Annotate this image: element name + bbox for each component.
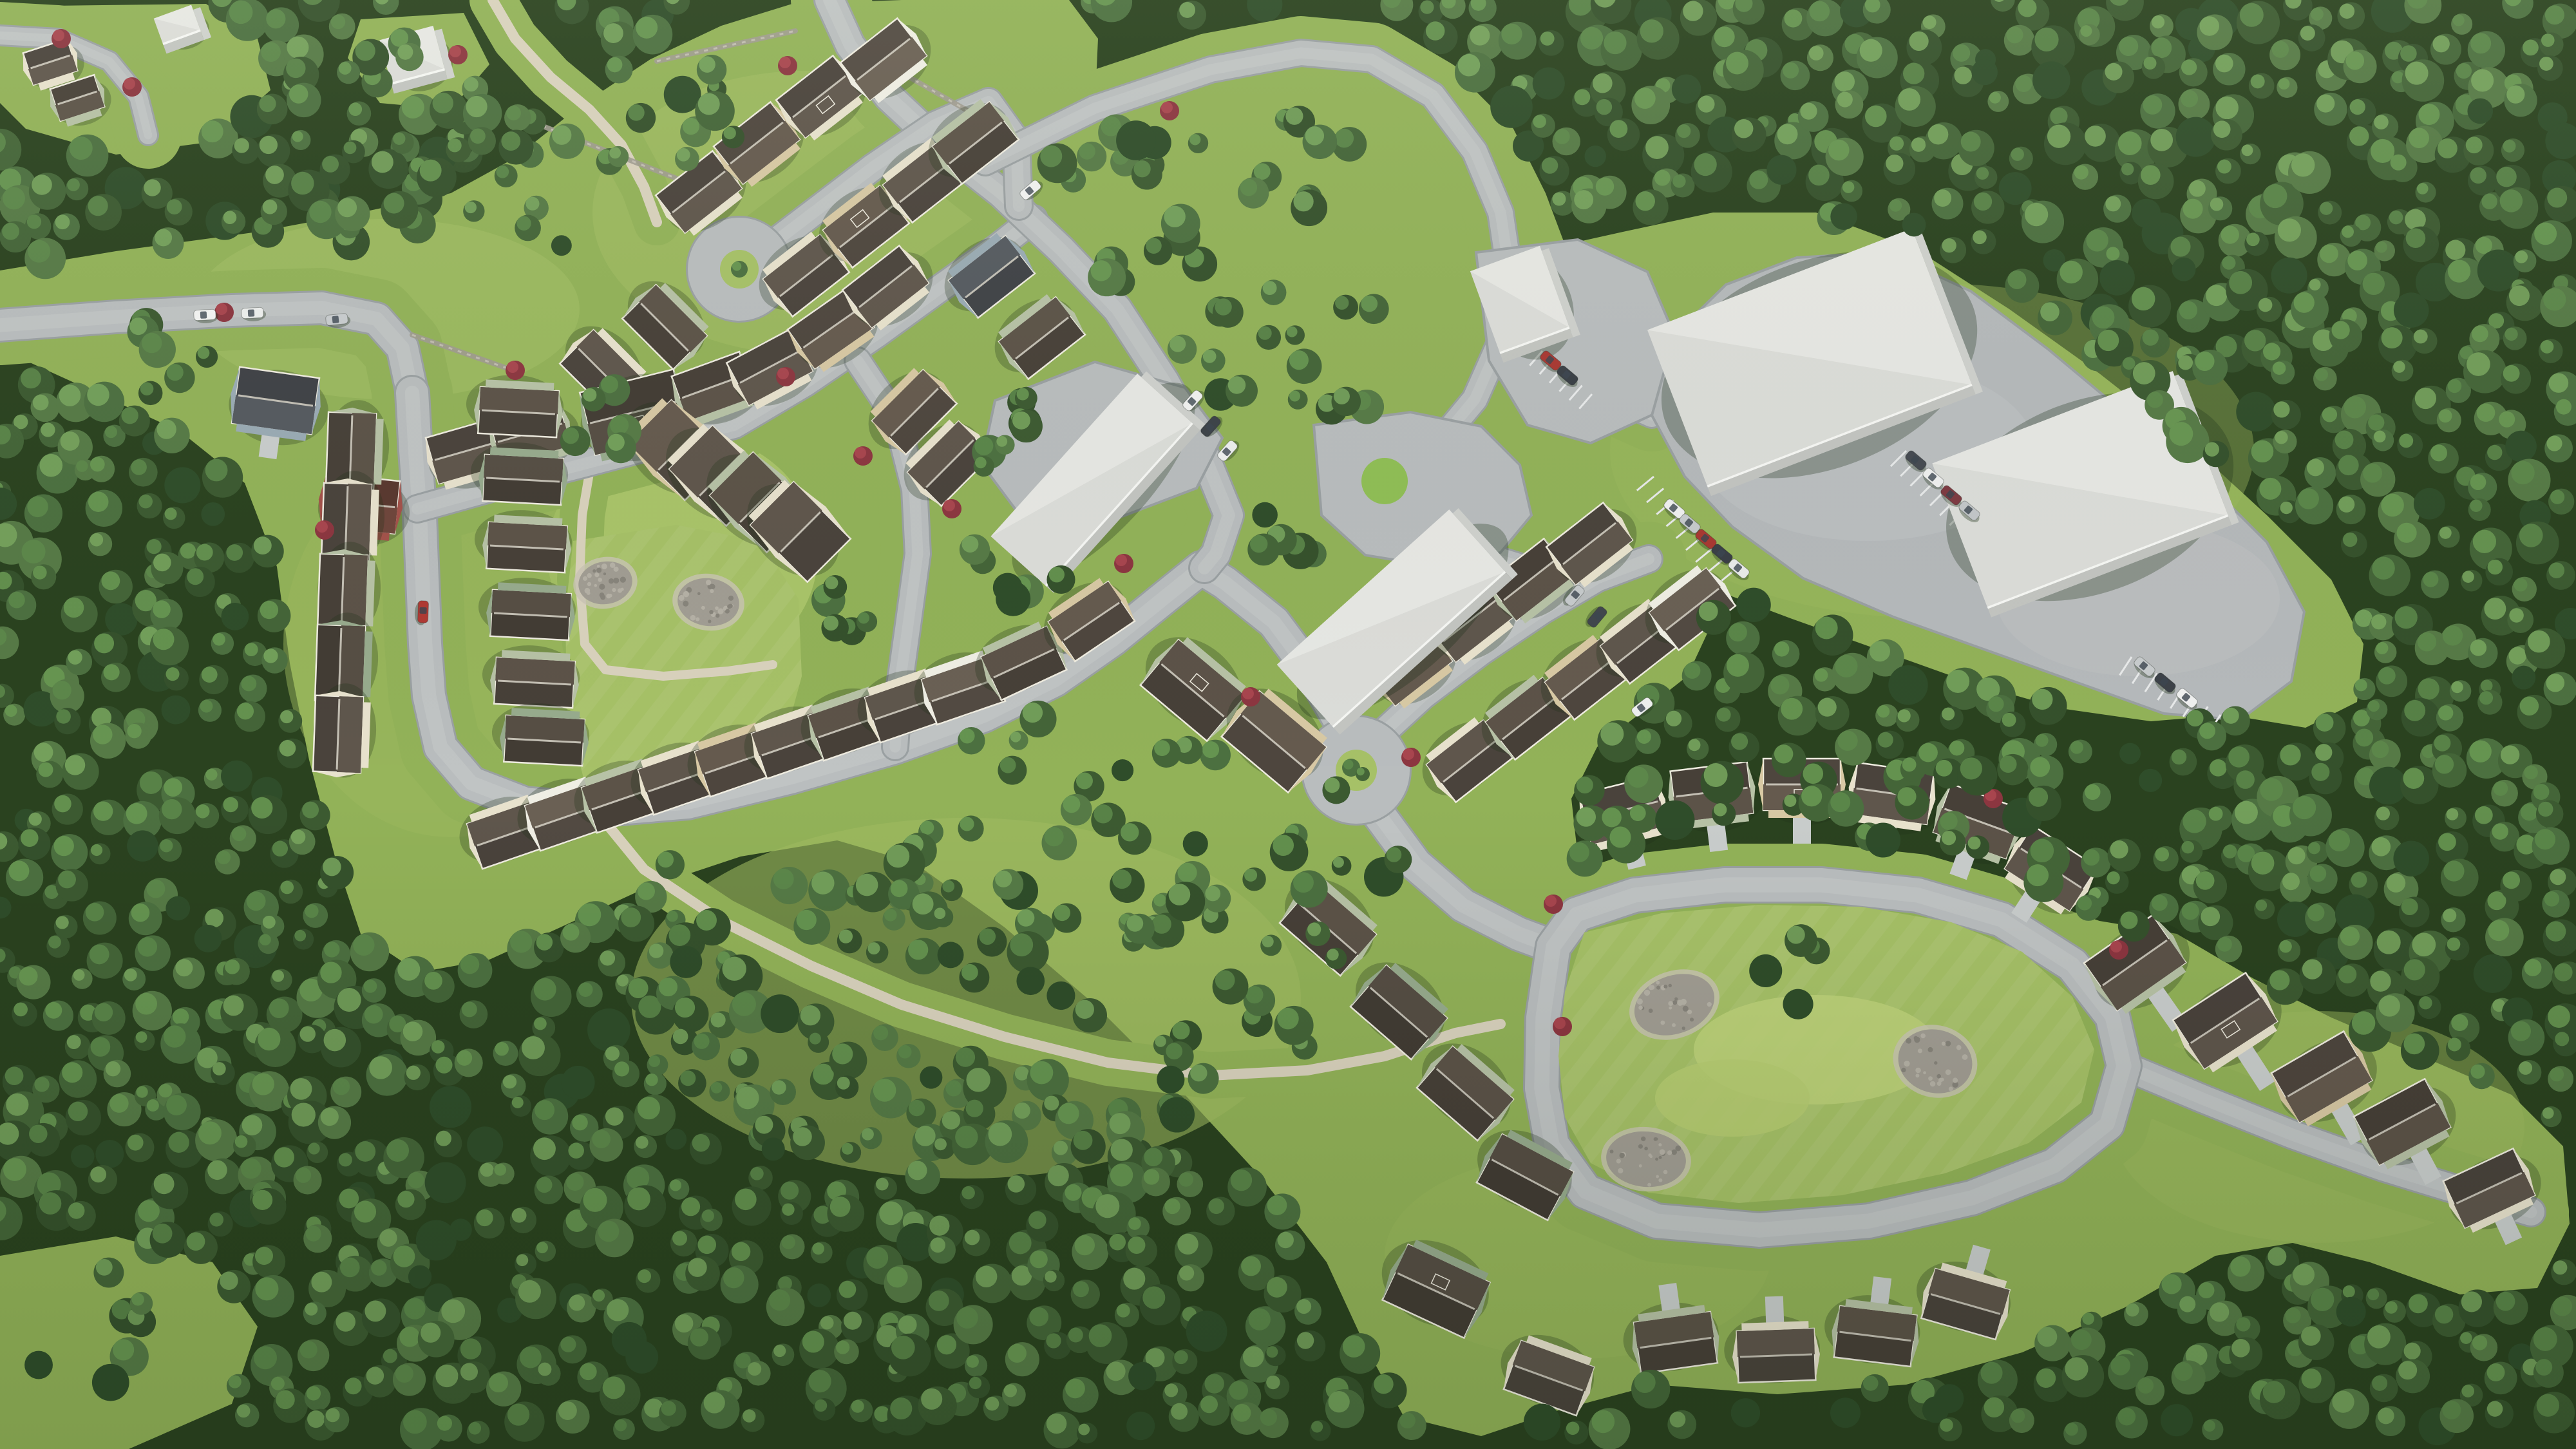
light-wash bbox=[0, 0, 2576, 1449]
aerial-site-render bbox=[0, 0, 2576, 1449]
aerial-render-figure: Aerial rendering of a wooded residential… bbox=[0, 0, 2576, 1449]
layer-light bbox=[0, 0, 2576, 1449]
